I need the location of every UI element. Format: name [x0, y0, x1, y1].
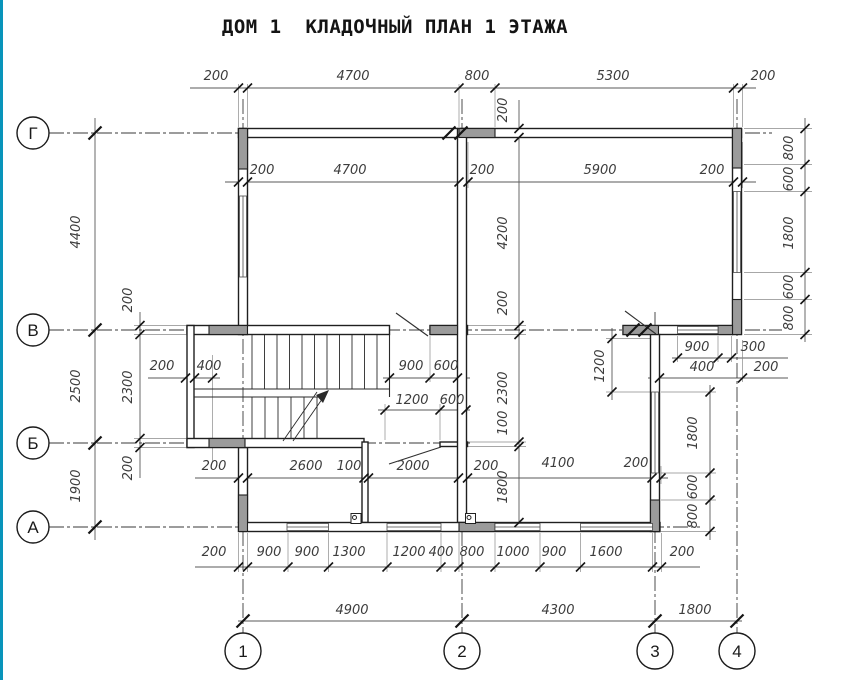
dim-label: 2300 [496, 371, 511, 404]
dim-label: 4300 [541, 603, 574, 618]
axis-bubble-label: 4 [732, 642, 741, 661]
dim-label: 200 [470, 163, 495, 178]
dim-label: 1200 [392, 545, 425, 560]
dim-label: 600 [434, 359, 459, 374]
dim-label: 900 [257, 545, 282, 560]
dim-label: 600 [782, 275, 797, 300]
dim-label: 4200 [496, 216, 511, 249]
dim-label: 400 [690, 360, 715, 375]
dim-label: 2000 [396, 459, 429, 474]
dim-label: 1900 [69, 469, 84, 502]
dim-label: 200 [474, 459, 499, 474]
dim-label: 200 [670, 545, 695, 560]
dim-label: 1200 [593, 349, 608, 382]
dim-label: 4400 [69, 215, 84, 248]
dim-label: 800 [782, 306, 797, 331]
dim-label: 2600 [289, 459, 322, 474]
axis-bubble-label: Б [27, 434, 38, 453]
dim-label: 200 [150, 359, 175, 374]
dim-label: 200 [700, 163, 725, 178]
dim-label: 900 [295, 545, 320, 560]
dim-label: 1800 [678, 603, 711, 618]
dim-label: 200 [121, 288, 136, 313]
dim-label: 600 [782, 167, 797, 192]
dim-label: 900 [542, 545, 567, 560]
dim-label: 200 [204, 69, 229, 84]
drawing-canvas: ДОМ 1 КЛАДОЧНЫЙ ПЛАН 1 ЭТАЖА 20047008005… [0, 0, 842, 680]
dim-label: 1000 [496, 545, 529, 560]
axis-bubble-label: Г [28, 124, 37, 143]
dim-label: 800 [465, 69, 490, 84]
dim-label: 200 [202, 459, 227, 474]
dim-label: 2500 [69, 369, 84, 402]
dim-label: 300 [741, 340, 766, 355]
dim-label: 400 [429, 545, 454, 560]
dim-label: 5300 [596, 69, 629, 84]
dim-label: 1800 [782, 216, 797, 249]
axis-bubble-label: В [27, 321, 38, 340]
dimension-labels: 2004700800530020020047002005900200800600… [69, 69, 797, 618]
dim-label: 200 [202, 545, 227, 560]
dim-label: 600 [440, 393, 465, 408]
dim-label: 1200 [395, 393, 428, 408]
dim-label: 100 [496, 411, 511, 436]
dim-label: 4900 [335, 603, 368, 618]
dim-label: 5900 [583, 163, 616, 178]
dim-label: 200 [496, 291, 511, 316]
axis-bubble-label: А [27, 518, 39, 537]
dim-label: 800 [460, 545, 485, 560]
axis-bubble-label: 2 [457, 642, 466, 661]
dim-label: 200 [751, 69, 776, 84]
dim-label: 800 [686, 504, 701, 529]
floor-plan: 2004700800530020020047002005900200800600… [0, 0, 842, 680]
dim-label: 800 [782, 136, 797, 161]
staircase [194, 335, 390, 442]
dim-label: 4100 [541, 456, 574, 471]
dim-label: 1600 [589, 545, 622, 560]
dim-label: 200 [496, 98, 511, 123]
axis-bubble-label: 1 [238, 642, 247, 661]
dim-label: 1800 [686, 416, 701, 449]
dim-label: 200 [121, 456, 136, 481]
dim-label: 600 [686, 475, 701, 500]
axis-bubble-label: 3 [650, 642, 659, 661]
dim-label: 200 [250, 163, 275, 178]
dim-label: 4700 [333, 163, 366, 178]
dim-label: 1800 [496, 470, 511, 503]
dim-label: 200 [624, 456, 649, 471]
dim-label: 100 [337, 459, 362, 474]
dim-label: 1300 [332, 545, 365, 560]
dim-label: 900 [399, 359, 424, 374]
dim-label: 400 [197, 359, 222, 374]
dim-label: 900 [685, 340, 710, 355]
dim-label: 4700 [336, 69, 369, 84]
dim-label: 200 [754, 360, 779, 375]
dim-label: 2300 [121, 370, 136, 403]
